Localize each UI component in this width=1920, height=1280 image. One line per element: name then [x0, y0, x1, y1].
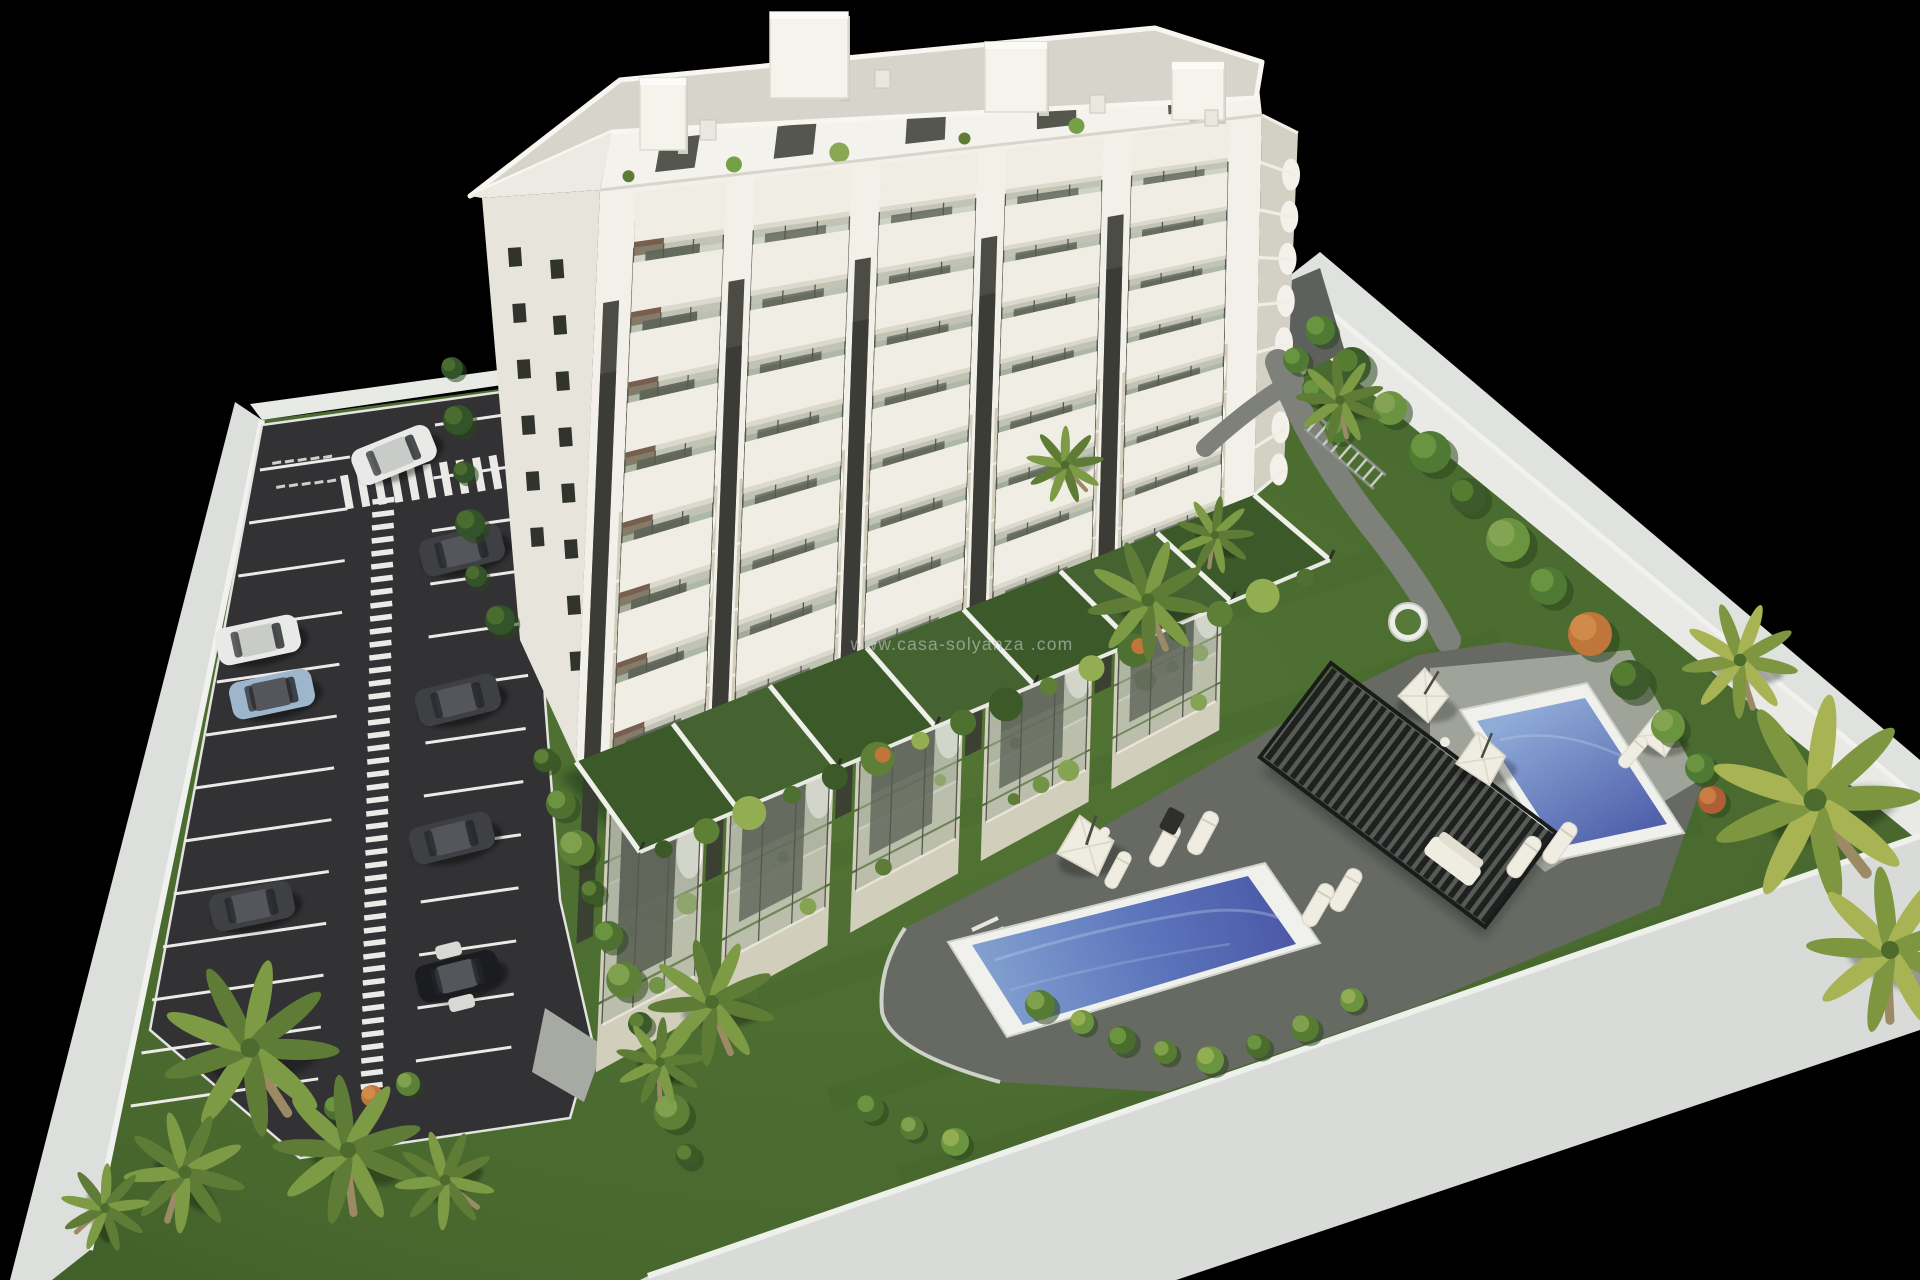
balcony-plant: [649, 977, 666, 994]
palm-crown: [705, 995, 719, 1009]
architectural-render: www.casa-solyanza .com: [0, 0, 1920, 1280]
window: [512, 303, 526, 323]
palm-crown: [1141, 593, 1154, 606]
balcony-plant: [1008, 793, 1020, 805]
window: [553, 315, 567, 335]
bulkhead-top: [640, 78, 686, 85]
penthouse-window: [774, 122, 817, 159]
round-planter: [1389, 603, 1427, 641]
roof-vent: [875, 70, 890, 88]
roof-vent: [1090, 95, 1105, 113]
roof-vent: [1205, 110, 1218, 126]
window: [517, 359, 531, 379]
terrace-plant: [726, 156, 742, 172]
hedge-bush: [911, 732, 929, 750]
window: [550, 259, 564, 279]
side-table: [1440, 737, 1450, 747]
roof-vent: [700, 120, 716, 140]
hedge-bush: [732, 796, 766, 830]
balcony-plant: [1058, 760, 1080, 782]
stair-bulkhead: [985, 42, 1047, 112]
window: [521, 415, 535, 435]
hedge-bush: [1296, 569, 1314, 587]
stair-bulkhead: [640, 78, 686, 150]
bulkhead-top: [985, 42, 1047, 49]
bulkhead-top: [1172, 62, 1224, 69]
watermark: www.casa-solyanza .com: [850, 634, 1074, 654]
side-table: [1100, 827, 1110, 837]
window: [561, 483, 575, 503]
terrace-plant: [829, 143, 849, 163]
render-canvas: www.casa-solyanza .com: [0, 0, 1920, 1280]
hedge-bush: [1079, 655, 1105, 681]
hedge-bush: [1040, 677, 1058, 695]
window: [564, 539, 578, 559]
side-balcony-slab: [1259, 258, 1293, 260]
orange-bush: [875, 747, 891, 763]
balcony-plant: [800, 898, 817, 915]
window: [556, 371, 570, 391]
window: [558, 427, 572, 447]
terrace-plant: [958, 132, 970, 144]
hedge-bush: [655, 840, 673, 858]
stair-bulkhead: [770, 12, 848, 98]
balcony-awning: [1272, 411, 1290, 443]
bulkhead-top: [770, 12, 848, 19]
balcony-plant: [1033, 776, 1050, 793]
hedge-bush: [693, 818, 719, 844]
hedge-bush: [950, 710, 976, 736]
hedge-bush: [1207, 601, 1233, 627]
window: [508, 247, 522, 267]
window: [530, 527, 544, 547]
hedge-bush: [1246, 579, 1280, 613]
window: [567, 595, 581, 615]
hedge-bush: [989, 687, 1023, 721]
balcony-plant: [1190, 694, 1207, 711]
hedge-bush: [822, 764, 848, 790]
window: [526, 471, 540, 491]
terrace-plant: [623, 170, 635, 182]
hedge-bush: [783, 786, 801, 804]
balcony-plant: [875, 859, 892, 876]
terrace-plant: [1068, 118, 1084, 134]
